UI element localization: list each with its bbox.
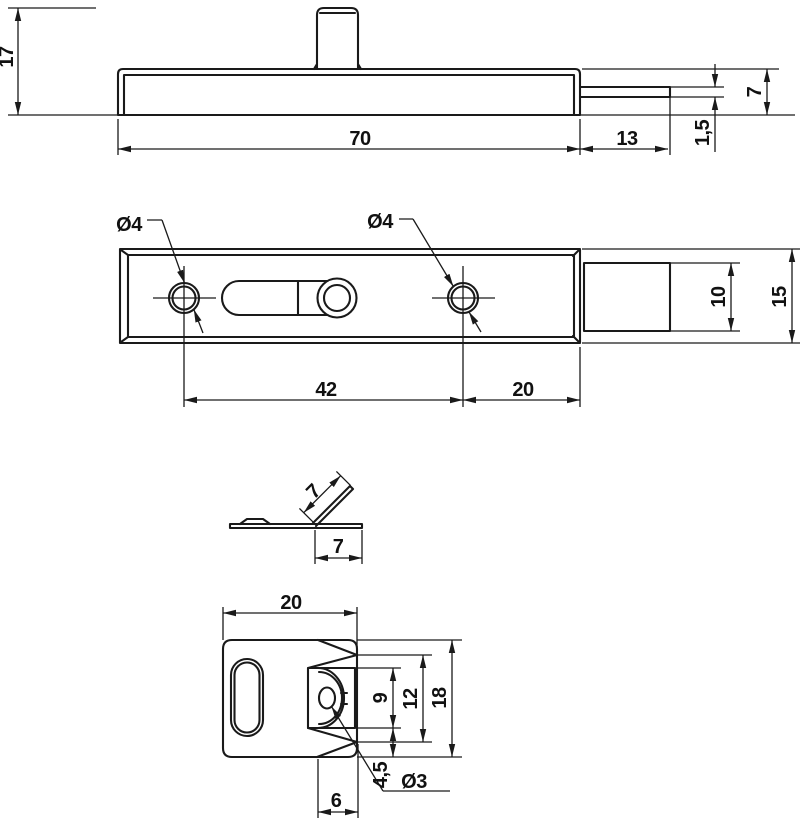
leader-hole-right-b	[469, 312, 481, 332]
leader-hole-left-a	[162, 220, 185, 283]
dim-text-bolt-width: 10	[708, 286, 730, 308]
dim-text-total-height: 17	[0, 46, 18, 68]
flap-hole	[319, 688, 335, 709]
dim-text-bolt-extension: 13	[616, 128, 638, 150]
technical-drawing: 17 70 13 1,5 7 Ø4 Ø4 42 20	[0, 0, 800, 821]
bracket-side-view: 7 7	[230, 471, 362, 564]
bracket-plan-view: 20 9 12 18 4,5 Ø3 6	[223, 592, 462, 818]
dim-text-plate-width: 20	[280, 592, 302, 614]
flap-hole-label: Ø3	[401, 771, 427, 793]
plan-view: Ø4 Ø4 42 20 10 15	[116, 211, 800, 407]
hole-label-right: Ø4	[367, 211, 394, 233]
dim-text-body-width: 15	[769, 286, 791, 308]
latch-body-inner-edges	[124, 75, 574, 115]
leader-hole-right-a	[413, 219, 453, 287]
plan-bolt	[584, 263, 670, 331]
knob-outline	[314, 8, 361, 69]
dim-text-body-height: 7	[744, 86, 766, 97]
dim-text-flap-width: 9	[370, 692, 392, 703]
dim-text-body-length: 70	[349, 128, 371, 150]
flap-top-projection	[308, 668, 355, 728]
hole-label-left: Ø4	[116, 214, 143, 236]
dim-text-fold-width: 6	[331, 790, 342, 812]
mounting-slot-inner	[235, 663, 260, 733]
drawing-canvas: 17 70 13 1,5 7 Ø4 Ø4 42 20	[0, 0, 800, 821]
bracket-plate-outline	[223, 640, 357, 757]
dim-text-bottom-offset: 4,5	[370, 761, 392, 788]
bracket-plate-profile	[230, 519, 362, 528]
slide-slot	[222, 281, 328, 315]
side-view-extension-lines	[8, 8, 795, 155]
dim-text-cutout-height: 12	[400, 688, 422, 710]
knob-top-inner	[324, 285, 350, 311]
dim-text-flap-offset: 7	[333, 536, 344, 558]
bolt-bar	[580, 87, 670, 97]
plan-extension-lines	[153, 249, 800, 407]
dim-text-hole-spacing: 42	[315, 379, 337, 401]
side-view: 17 70 13 1,5 7	[0, 8, 795, 155]
dim-text-plate-height: 18	[429, 687, 451, 709]
dim-text-bolt-thickness: 1,5	[692, 119, 714, 146]
flap-cutout-edges	[308, 640, 357, 757]
leader-hole-left-b	[194, 309, 203, 333]
dim-text-flap-length: 7	[302, 480, 325, 503]
dim-text-hole-to-end: 20	[512, 379, 534, 401]
